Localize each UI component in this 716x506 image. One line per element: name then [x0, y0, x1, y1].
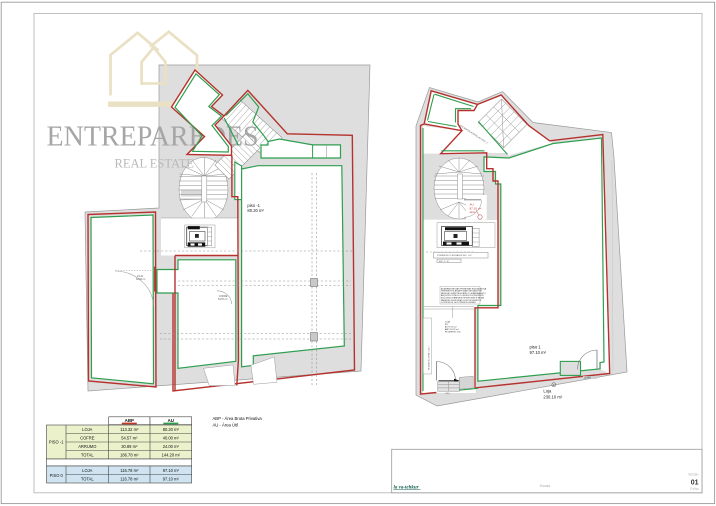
svg-text:AU: AU	[168, 418, 174, 423]
svg-text:Loja: Loja	[543, 388, 552, 393]
svg-text:Versão: Versão	[688, 473, 698, 477]
svg-text:Folha: Folha	[690, 487, 698, 491]
svg-text:REAL ESTATE: REAL ESTATE	[115, 157, 195, 171]
svg-text:42.92 m²: 42.92 m²	[136, 278, 146, 281]
svg-text:Escala: Escala	[540, 484, 550, 488]
svg-text:40.00 m²: 40.00 m²	[163, 435, 180, 440]
svg-text:PE DIREITO LIVRE 3.05 m: PE DIREITO LIVRE 3.05 m	[429, 345, 431, 370]
svg-text:LOJA: LOJA	[82, 468, 93, 473]
svg-text:LOJA: LOJA	[82, 427, 93, 432]
svg-text:186.78 m²: 186.78 m²	[120, 452, 139, 457]
svg-text:A: A	[553, 383, 555, 387]
svg-text:(0.90): (0.90)	[585, 377, 591, 380]
svg-text:piso 1: piso 1	[530, 345, 542, 350]
svg-text:aprov.: aprov.	[470, 211, 477, 214]
svg-text:80.20 m²: 80.20 m²	[247, 208, 264, 213]
svg-text:97.10 m²: 97.10 m²	[163, 476, 180, 481]
svg-text:116.78 m²: 116.78 m²	[120, 468, 139, 473]
svg-text:24.00 m²: 24.00 m²	[163, 444, 180, 449]
svg-text:80.20 m²: 80.20 m²	[163, 427, 180, 432]
svg-text:PE DIREITO 3.05: PE DIREITO 3.05	[445, 331, 462, 333]
svg-text:ESC. 1 : 50: ESC. 1 : 50	[439, 261, 449, 263]
svg-text:97.10 m²: 97.10 m²	[470, 206, 482, 210]
svg-text:COFRE: COFRE	[80, 435, 95, 440]
svg-text:144.20 m²: 144.20 m²	[162, 452, 181, 457]
svg-text:01: 01	[691, 480, 699, 487]
svg-text:AU - Área Útil: AU - Área Útil	[213, 422, 239, 427]
svg-text:ABP: ABP	[125, 418, 134, 423]
svg-text:97.10 m²: 97.10 m²	[163, 468, 180, 473]
svg-text:PISO -1: PISO -1	[49, 440, 64, 445]
svg-text:ARRUMO: ARRUMO	[78, 444, 96, 449]
svg-text:54.57 m²: 54.57 m²	[121, 435, 138, 440]
svg-text:TOTAL: TOTAL	[81, 452, 95, 457]
svg-text:ABP - Área Bruta Privativa: ABP - Área Bruta Privativa	[213, 416, 263, 421]
svg-text:116.78 m²: 116.78 m²	[120, 476, 139, 481]
svg-text:97.10 m²: 97.10 m²	[530, 350, 547, 355]
svg-text:PISO 0: PISO 0	[50, 473, 64, 478]
svg-text:30.89 m²: 30.89 m²	[121, 444, 138, 449]
svg-text:CONTIGUOS, NOS TERMOS LEGAIS.: CONTIGUOS, NOS TERMOS LEGAIS.	[441, 301, 476, 304]
svg-text:(.90): (.90)	[445, 393, 450, 395]
svg-text:PORMENOR DO ELEVADOR ESC. 1:20: PORMENOR DO ELEVADOR ESC. 1:20	[437, 254, 471, 257]
svg-text:TOTAL: TOTAL	[81, 476, 95, 481]
svg-text:54.57 m²: 54.57 m²	[218, 298, 228, 301]
svg-text:113.32 m²: 113.32 m²	[120, 427, 139, 432]
svg-text:230.10 m²: 230.10 m²	[543, 395, 562, 400]
